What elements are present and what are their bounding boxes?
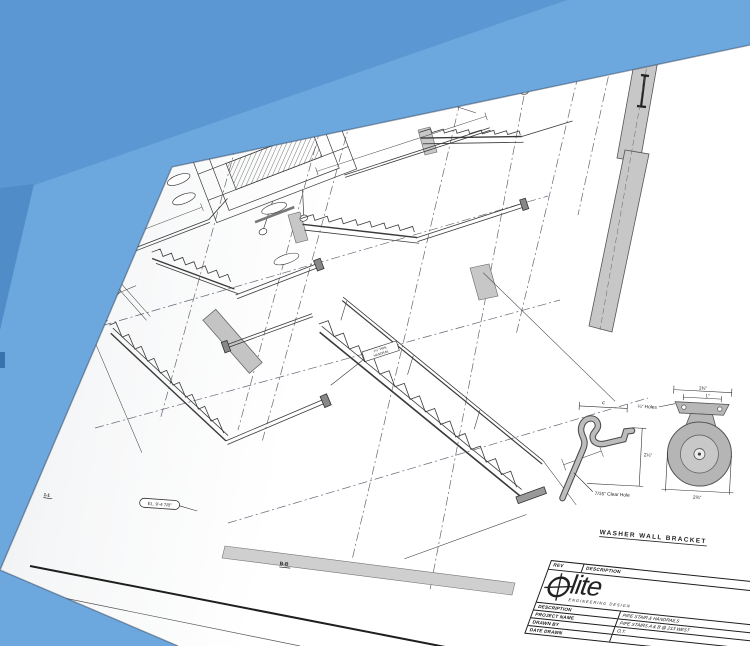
svg-text:7/16" Clear Hole: 7/16" Clear Hole xyxy=(595,491,631,499)
svg-text:1": 1" xyxy=(705,393,710,398)
elevation-tag: EL. 9'-4 7/8" xyxy=(139,498,197,511)
wall-section-top-right xyxy=(589,58,658,332)
svg-text:1¾": 1¾" xyxy=(699,386,708,392)
svg-text:WASHER WALL BRACKET: WASHER WALL BRACKET xyxy=(599,529,707,545)
bracket-front-view: 1¾" 1" ¼" Holes 2¾" xyxy=(633,382,739,502)
svg-text:2¼": 2¼" xyxy=(644,452,653,458)
svg-text:¼" Holes: ¼" Holes xyxy=(637,404,657,411)
svg-text:2¾": 2¾" xyxy=(693,495,702,501)
scene: 1¼" PIPE HANDRAIL EL. 9'-4 7/8" B-B 1-1 xyxy=(0,0,750,646)
wall-stub-right xyxy=(470,264,498,300)
section-label-1: 1-1 xyxy=(43,492,53,499)
handrail-note: 1¼" PIPE HANDRAIL xyxy=(324,341,403,385)
svg-text:1-1: 1-1 xyxy=(43,492,51,498)
bg-dark-chip xyxy=(0,352,5,368)
stair-detail-main xyxy=(221,222,644,600)
svg-text:c: c xyxy=(602,400,605,406)
bracket-title: WASHER WALL BRACKET xyxy=(599,529,707,546)
floor-band xyxy=(222,546,515,595)
grid-centerlines xyxy=(70,60,648,590)
bracket-side-view: c 2¼" 7/16" Clear Hole xyxy=(562,398,655,502)
